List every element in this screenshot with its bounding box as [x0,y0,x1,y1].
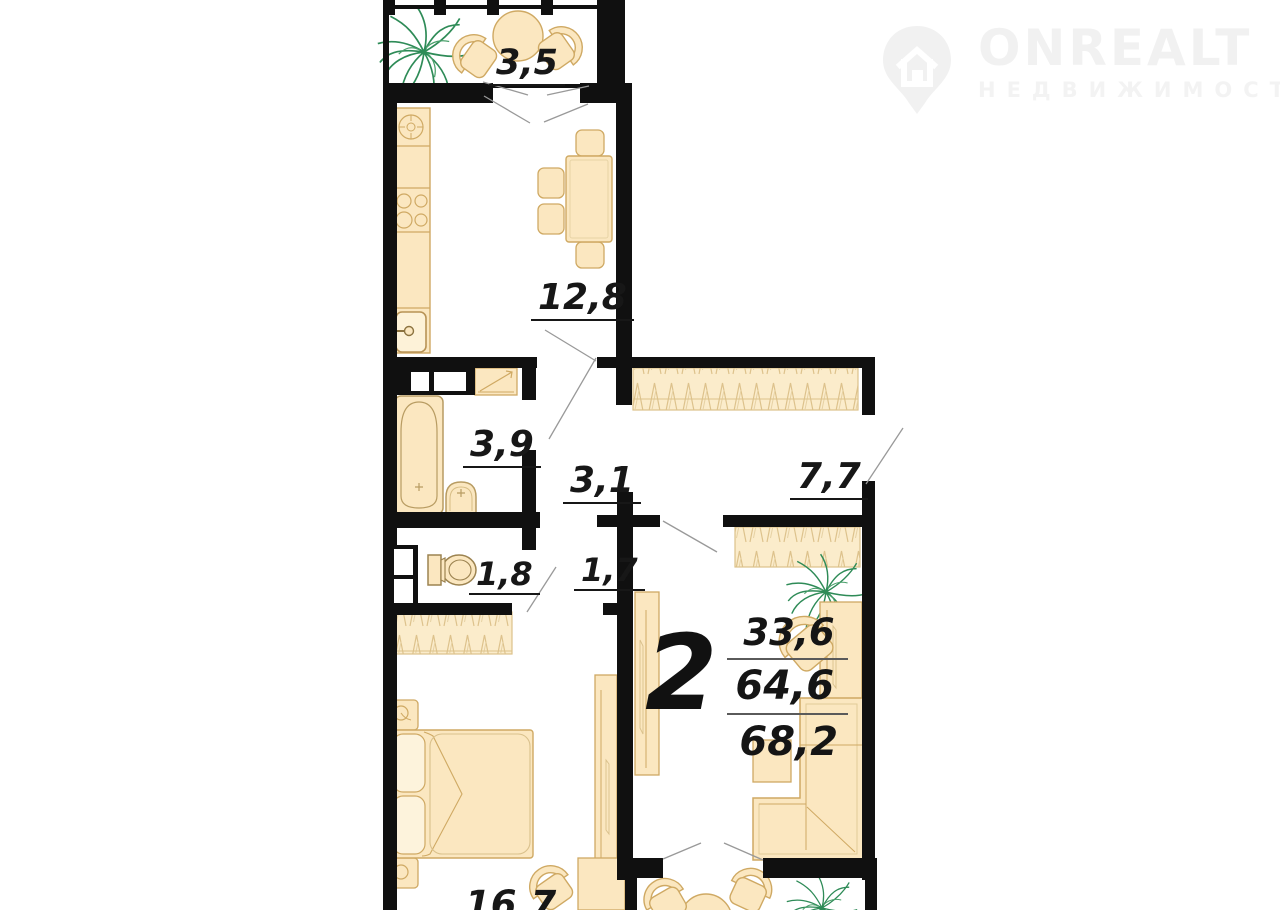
total-area-value: 68,2 [727,715,848,762]
bathroom-sink-icon [446,482,476,514]
onrealt-pin-icon [876,22,958,116]
bedroom-dresser-icon [595,675,617,873]
bathroom-area-label: 3,9 [463,427,541,468]
corridor-wardrobe-icon [633,368,858,410]
floor-plan-page: 3,5 12,8 3,9 3,1 7,7 1,8 1,7 16,7 2 33,6… [0,0,1280,910]
onrealt-watermark: ONREALT НЕДВИЖИМОСТЬ [876,22,1280,116]
watermark-tagline: НЕДВИЖИМОСТЬ [978,78,1280,102]
washing-machine-icon [475,368,517,395]
rooms-count: 2 [645,626,717,722]
hall-area-label: 3,1 [563,463,641,504]
usable-area-value: 64,6 [727,660,848,715]
watermark-brand: ONREALT [978,22,1280,75]
bedroom-area-label: 16,7 [458,886,563,910]
apartment-summary: 2 33,6 64,6 68,2 [645,612,848,762]
double-bed-icon [390,730,533,858]
corridor-area-label: 7,7 [790,459,868,500]
living-area-value: 33,6 [727,612,848,660]
balcony2-plant-icon [787,874,857,910]
balcony-area-label: 3,5 [489,46,565,86]
bathtub-icon [395,396,443,514]
kitchen-area-label: 12,8 [531,280,634,321]
bedroom-wardrobe-icon [392,612,512,654]
hall2-area-label: 1,7 [574,554,645,591]
balcony2-table-icon [680,894,732,910]
floor-plan-drawing [0,0,1280,910]
dining-table-icon [538,130,612,268]
wc-area-label: 1,8 [469,558,540,595]
